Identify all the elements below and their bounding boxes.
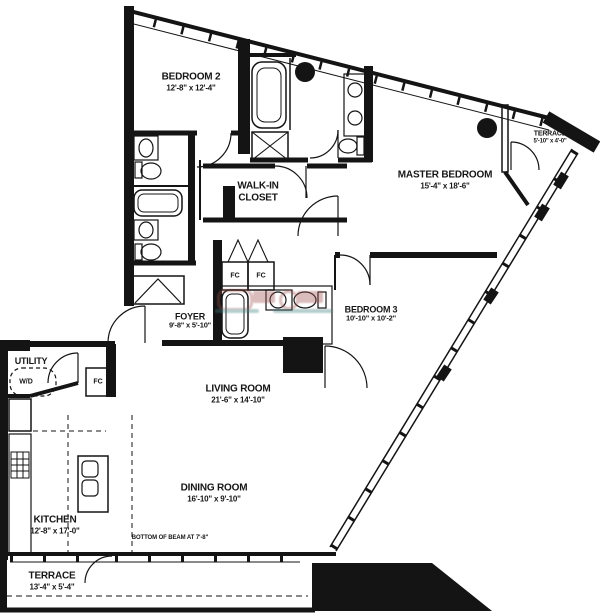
floor-plan-drawing (0, 0, 600, 616)
bedroom2-door-arc (197, 133, 231, 167)
label-dining-room: DINING ROOM 16'-10" x 9'-10" (181, 483, 248, 504)
label-fc-utility: FC (93, 379, 102, 386)
label-beam-note: BOTTOM OF BEAM AT 7'-8" (132, 535, 209, 541)
exterior-left-wall (124, 6, 134, 306)
entry-door-arc (108, 306, 145, 343)
terrace-top-door-arc (511, 142, 539, 170)
living-room-door-arc (325, 346, 367, 388)
toilet-bowl (339, 139, 357, 153)
label-utility: UTILITY (15, 356, 48, 366)
bedroom3-walls (335, 255, 497, 290)
bath3-fixtures (134, 190, 182, 260)
column-mass-bottom (312, 563, 492, 611)
floor-plan: BEDROOM 2 12'-8" x 12'-4" WALK-IN CLOSET… (0, 0, 600, 616)
sink-basin (82, 480, 98, 496)
living-room-walls (162, 337, 367, 388)
fc-closets (222, 240, 274, 290)
sink-basin (82, 461, 98, 477)
toilet-tank (318, 292, 326, 308)
label-kitchen: KITCHEN 12'-8" x 17'-0" (30, 515, 79, 536)
sink (270, 292, 286, 308)
label-bedroom2: BEDROOM 2 12'-8" x 12'-4" (162, 72, 221, 93)
label-walk-in-closet: WALK-IN CLOSET (237, 181, 278, 204)
label-foyer: FOYER 9'-8" x 5'-10" (169, 312, 211, 331)
master-bath-door-arc (310, 130, 338, 158)
foyer-closet-doors (135, 279, 181, 303)
fc-closet-doors (228, 240, 268, 262)
bedroom3-door-arc (340, 255, 370, 285)
terrace-door-arc (85, 556, 112, 583)
toilet-bowl (294, 292, 316, 308)
toilet-tank (357, 137, 364, 155)
sink (348, 111, 362, 125)
closet-door-arc (275, 166, 307, 198)
label-fc-right: FC (256, 273, 265, 280)
toilet-bowl (141, 163, 161, 179)
label-washer-dryer: W/D (19, 379, 33, 386)
label-master-bedroom: MASTER BEDROOM 15'-4" x 18'-6" (398, 170, 492, 191)
utility-walls (0, 344, 116, 397)
sink (348, 83, 362, 97)
terrace-top-walls (502, 105, 539, 205)
label-fc-left: FC (230, 273, 239, 280)
refrigerator (9, 399, 31, 431)
label-terrace-top: TERRACE 5'-10" x 4'-0" (533, 131, 566, 146)
label-bedroom3: BEDROOM 3 10'-10" x 10'-2" (345, 305, 398, 324)
bath2-fixtures (134, 136, 161, 179)
utility-door-arc (48, 353, 78, 383)
foyer-closet (132, 276, 184, 304)
top-window-wall (126, 10, 549, 130)
bath-bedroom3-fixtures (218, 286, 332, 344)
toilet-bowl (141, 244, 161, 260)
master-corridor-door (298, 196, 338, 236)
exterior-left-lower-wall (0, 340, 30, 560)
label-terrace-bottom: TERRACE 13'-4" x 5'-4" (29, 571, 76, 592)
diagonal-window-wall (330, 149, 578, 551)
label-living-room: LIVING ROOM 21'-6" x 14'-10" (205, 384, 270, 405)
hall-bath-walls (133, 133, 200, 263)
